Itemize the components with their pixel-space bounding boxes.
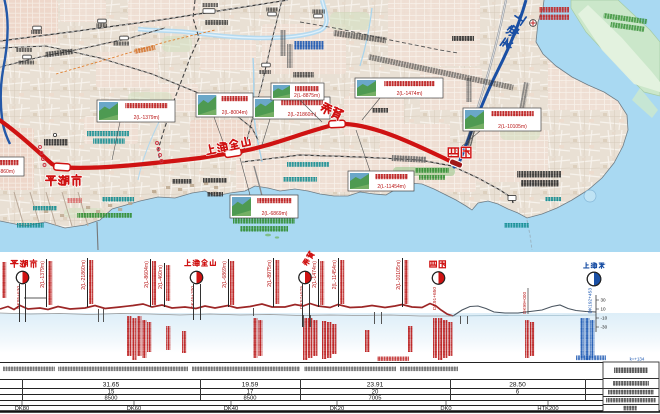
svg-text:HTK200: HTK200 <box>537 406 558 412</box>
svg-text:8500: 8500 <box>244 396 257 402</box>
svg-text:DK40: DK40 <box>224 406 239 412</box>
svg-text:-10: -10 <box>601 316 608 321</box>
svg-text:2(L-6869m): 2(L-6869m) <box>262 211 288 217</box>
svg-text:k=+134: k=+134 <box>630 357 645 362</box>
svg-text:2(L-1379m): 2(L-1379m) <box>134 115 160 121</box>
svg-text:28.50: 28.50 <box>509 382 526 389</box>
svg-text:10: 10 <box>601 307 607 312</box>
svg-text:8500: 8500 <box>105 396 118 402</box>
svg-text:DK99+000: DK99+000 <box>522 292 527 314</box>
svg-text:17: 17 <box>247 389 254 395</box>
svg-text:23.91: 23.91 <box>367 382 384 389</box>
svg-text:-30: -30 <box>601 325 608 330</box>
svg-text:20: 20 <box>372 389 379 395</box>
svg-text:2(L-8604m): 2(L-8604m) <box>144 261 150 288</box>
svg-text:DK192+453: DK192+453 <box>588 288 594 314</box>
svg-text:2(L-10105m): 2(L-10105m) <box>498 124 527 130</box>
svg-text:2(L-21860m): 2(L-21860m) <box>81 260 87 290</box>
svg-text:2(L-1474m): 2(L-1474m) <box>312 261 318 288</box>
svg-text:30: 30 <box>601 298 607 303</box>
svg-text:2(L-10105m): 2(L-10105m) <box>396 260 402 290</box>
svg-text:DK60: DK60 <box>127 406 142 412</box>
svg-text:31.65: 31.65 <box>103 382 120 389</box>
svg-text:DK20: DK20 <box>330 406 345 412</box>
svg-text:2(L-8004m): 2(L-8004m) <box>222 110 248 116</box>
svg-text:DK80: DK80 <box>15 406 30 412</box>
svg-text:2(L-11454m): 2(L-11454m) <box>377 184 406 190</box>
svg-text:(L-860m): (L-860m) <box>0 169 15 175</box>
svg-text:2(L-8875m): 2(L-8875m) <box>294 93 320 99</box>
svg-text:2(L-8975m): 2(L-8975m) <box>267 260 273 287</box>
svg-text:DK0: DK0 <box>440 406 451 412</box>
svg-text:7005: 7005 <box>369 396 382 402</box>
svg-text:2(L-11454m): 2(L-11454m) <box>332 260 338 290</box>
svg-text:15: 15 <box>108 389 115 395</box>
svg-text:2(L-460m): 2(L-460m) <box>158 265 164 289</box>
svg-text:2(L-6869m): 2(L-6869m) <box>222 261 228 288</box>
svg-text:2(L-1379m): 2(L-1379m) <box>40 261 46 288</box>
svg-text:2(L-1474m): 2(L-1474m) <box>397 91 423 97</box>
svg-text:19.59: 19.59 <box>242 382 259 389</box>
svg-text:DK91+650: DK91+650 <box>432 287 438 310</box>
